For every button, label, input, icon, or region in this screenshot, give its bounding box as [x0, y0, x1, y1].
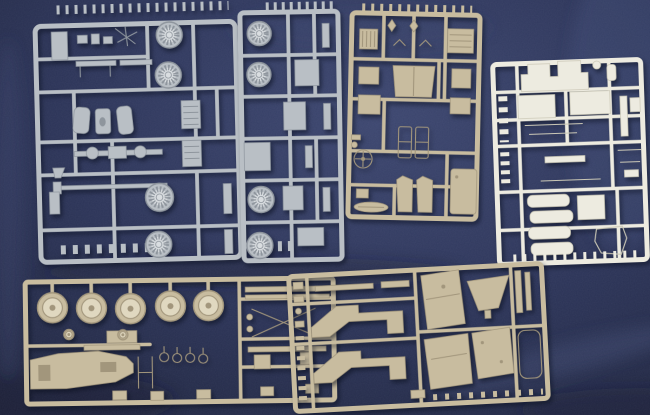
spoked-wheel: [155, 62, 182, 89]
spoked-wheel: [156, 22, 183, 49]
body-panel-part: [472, 327, 515, 379]
spoked-wheel: [145, 183, 174, 212]
disc-wheel: [155, 291, 185, 321]
door-part: [416, 176, 433, 212]
photo-model-kit-sprues: [0, 0, 650, 415]
cushion-bar-part: [531, 242, 573, 255]
disc-wheel: [193, 290, 223, 320]
steering-wheel-part: [354, 150, 372, 168]
cushion-bar-part: [527, 194, 569, 207]
spoked-wheel: [248, 186, 274, 212]
body-panel-part: [424, 333, 473, 389]
spoked-wheel: [145, 231, 172, 258]
disc-wheel: [37, 293, 67, 323]
door-part: [396, 176, 413, 212]
spoked-wheel: [247, 21, 271, 45]
door-panel-part: [450, 169, 477, 215]
cushion-bar-part: [530, 210, 573, 223]
cushion-bar-part: [528, 226, 570, 239]
disc-wheel: [115, 293, 145, 323]
spoked-wheel: [247, 62, 271, 86]
disc-wheel: [76, 293, 106, 323]
disc-wheel: [64, 329, 74, 339]
spoked-wheel: [247, 232, 273, 258]
disc-wheel: [118, 330, 128, 340]
